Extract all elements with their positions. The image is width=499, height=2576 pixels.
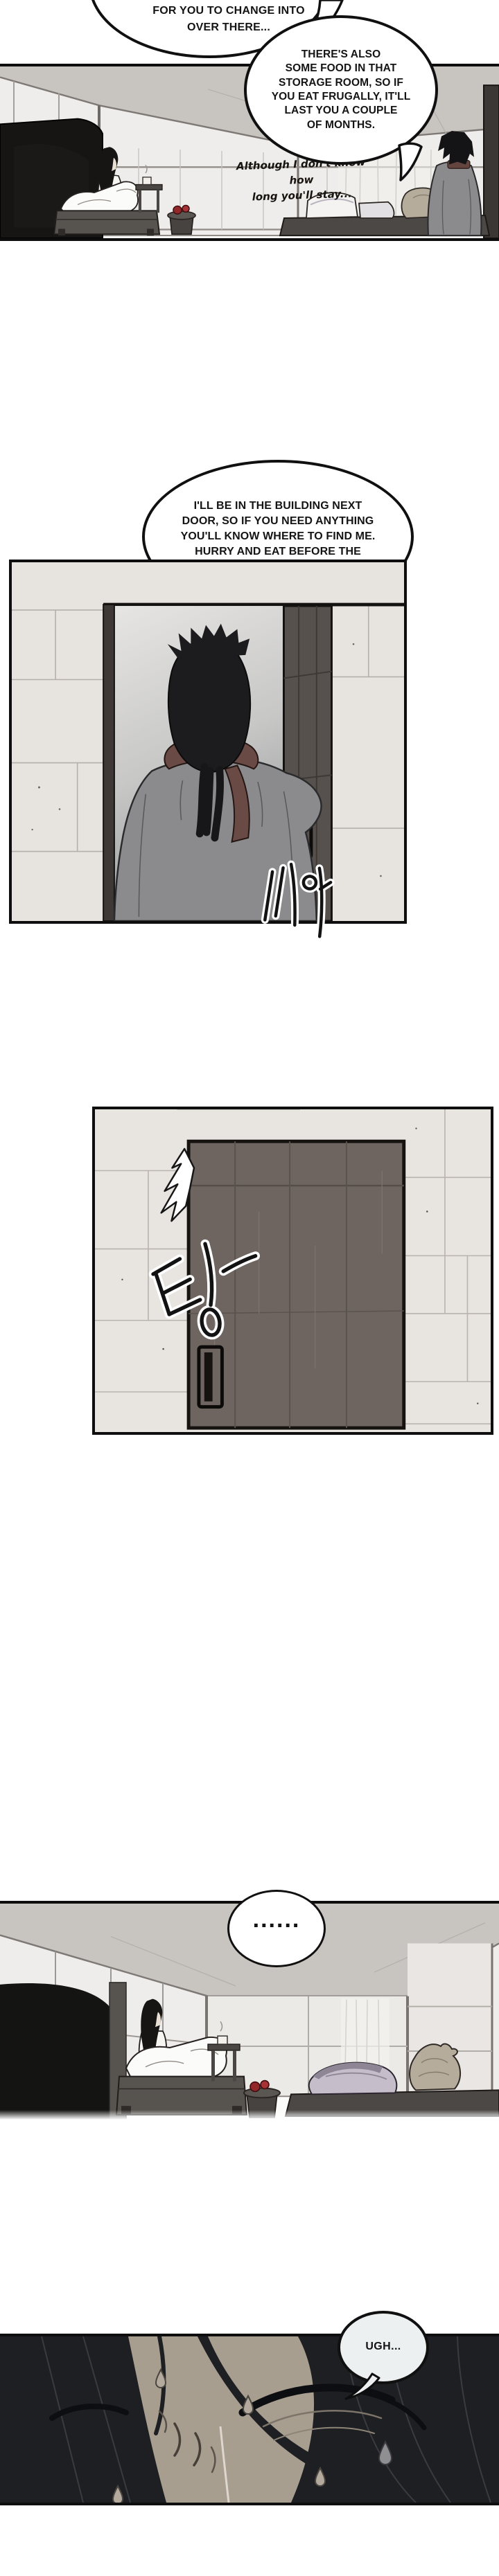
sfx-creak <box>255 861 345 945</box>
pillow-2 <box>359 202 394 218</box>
speech-bubble-4: ...... <box>227 1890 326 1967</box>
door-post <box>484 85 499 238</box>
bed-frame <box>54 211 159 234</box>
speech-bubble-5-tail <box>344 2371 382 2401</box>
speech-bubble-5-text: UGH... <box>365 2341 401 2353</box>
door-handle <box>199 1347 222 1407</box>
speech-bubble-4-text: ...... <box>253 1906 301 1933</box>
cup <box>218 2036 227 2044</box>
panel-bottom-fade <box>0 2110 499 2120</box>
bed-frame <box>116 2077 247 2115</box>
speech-bubble-2-tail <box>389 143 428 183</box>
closed-door <box>189 1141 404 1428</box>
comic-page: FOR YOU TO CHANGE INTO OVER THERE... <box>0 0 499 2576</box>
hanging-curtain <box>341 1998 389 2073</box>
panel-2-doorway-scene <box>9 560 407 924</box>
cup <box>143 177 151 185</box>
door-frame <box>103 605 114 921</box>
speech-bubble-2-text: THERE'S ALSO SOME FOOD IN THAT STORAGE R… <box>272 48 411 133</box>
ponytail <box>200 767 220 837</box>
panel-3-closed-door <box>92 1107 493 1435</box>
